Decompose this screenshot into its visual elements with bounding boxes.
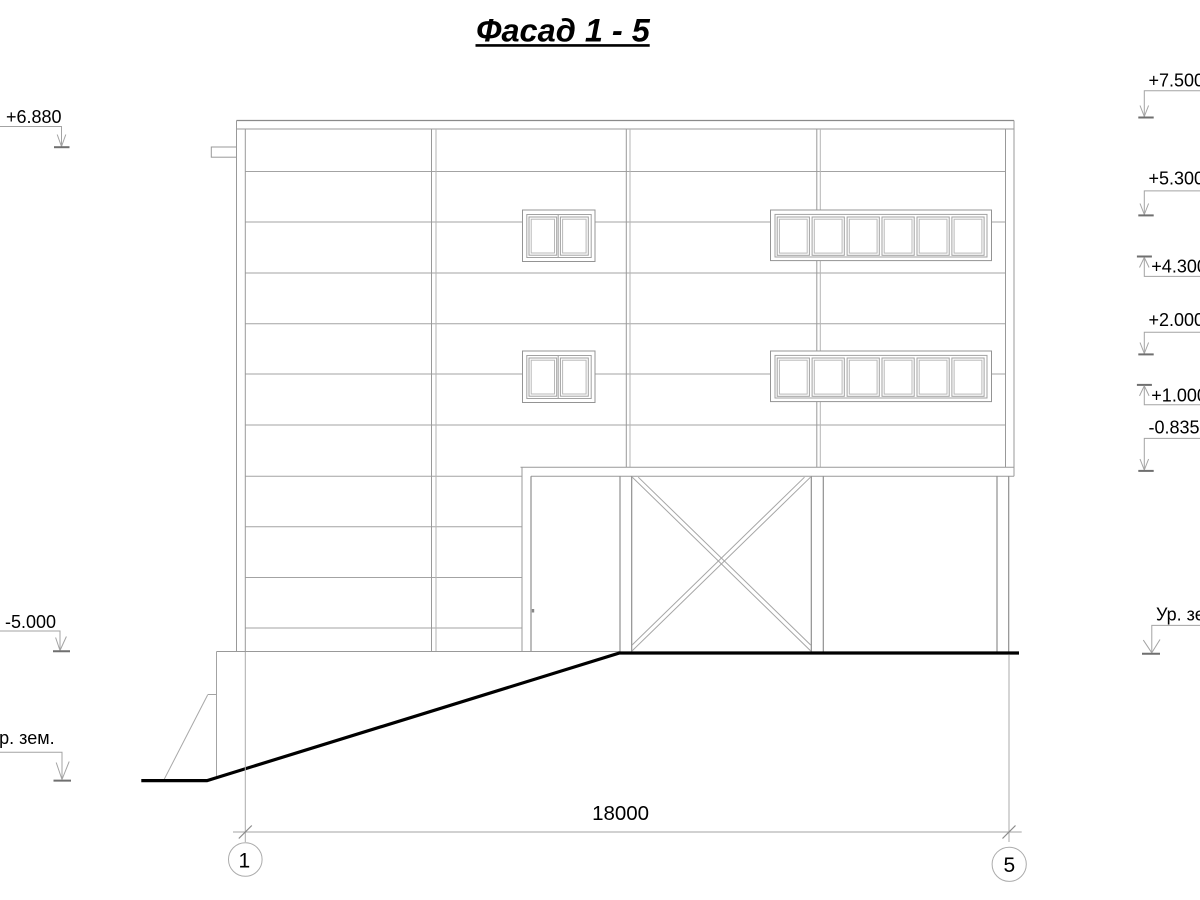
svg-text:1: 1 bbox=[238, 850, 250, 873]
svg-text:18000: 18000 bbox=[592, 802, 649, 825]
svg-text:Ур. зем.: Ур. зем. bbox=[0, 728, 55, 748]
svg-text:+2.000: +2.000 bbox=[1149, 310, 1200, 330]
svg-text:-5.000: -5.000 bbox=[5, 612, 56, 632]
svg-text:+5.300: +5.300 bbox=[1149, 168, 1200, 188]
svg-text:+4.300: +4.300 bbox=[1151, 257, 1200, 277]
svg-text:Ур. зем.: Ур. зем. bbox=[1156, 605, 1200, 625]
svg-text:+7.500: +7.500 bbox=[1149, 71, 1200, 91]
svg-text:Фасад 1 - 5: Фасад 1 - 5 bbox=[476, 13, 651, 49]
svg-text:+6.880: +6.880 bbox=[6, 107, 62, 127]
svg-text:-0.835: -0.835 bbox=[1149, 418, 1200, 438]
svg-text:5: 5 bbox=[1004, 854, 1016, 877]
svg-text:+1.000: +1.000 bbox=[1151, 386, 1200, 406]
